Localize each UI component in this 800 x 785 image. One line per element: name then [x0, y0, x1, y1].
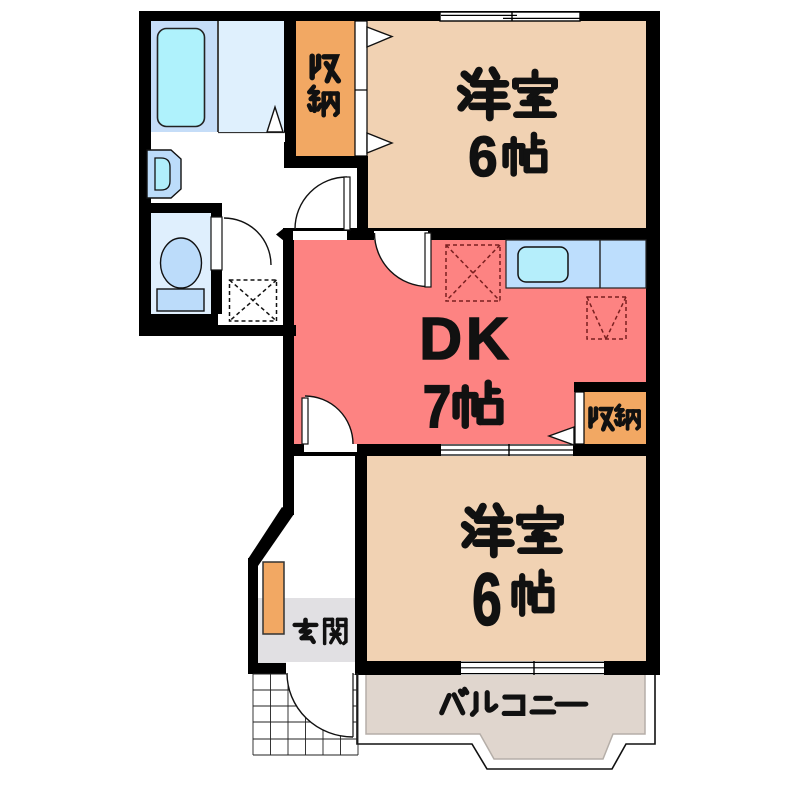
svg-text:6: 6 — [468, 124, 497, 189]
svg-text:DK: DK — [419, 306, 512, 372]
svg-text:7: 7 — [423, 373, 451, 440]
svg-text:6: 6 — [472, 558, 502, 641]
